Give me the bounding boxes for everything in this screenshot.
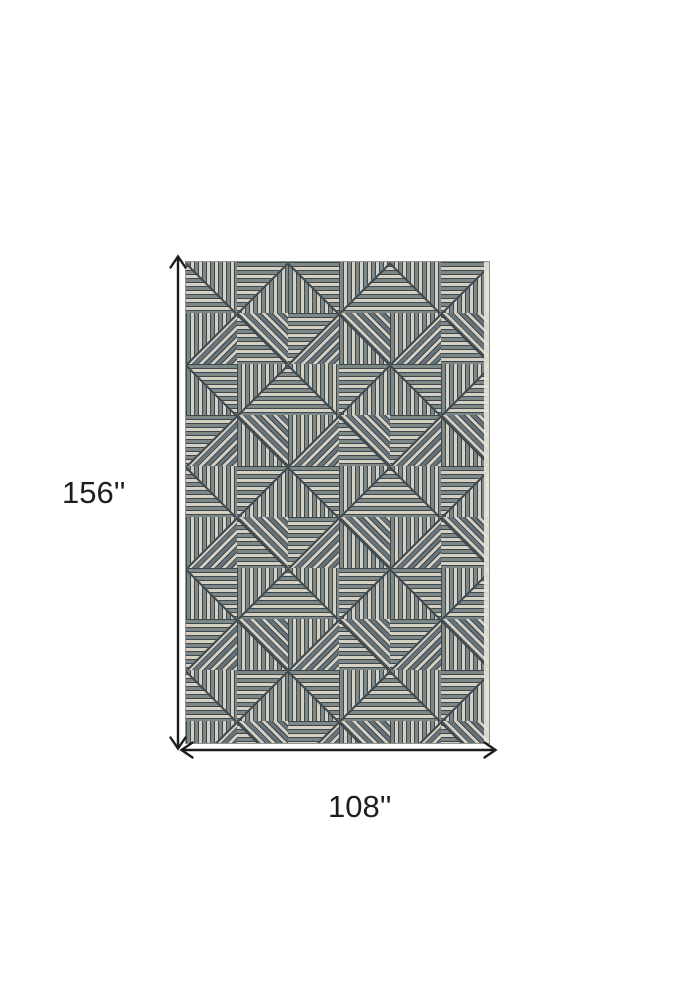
height-dimension-label: 156''	[62, 477, 126, 508]
product-dimension-diagram: 156'' 108''	[0, 0, 678, 1000]
height-dimension-arrow	[171, 257, 186, 749]
width-dimension-arrow	[182, 743, 496, 758]
width-dimension-label: 108''	[328, 791, 392, 822]
